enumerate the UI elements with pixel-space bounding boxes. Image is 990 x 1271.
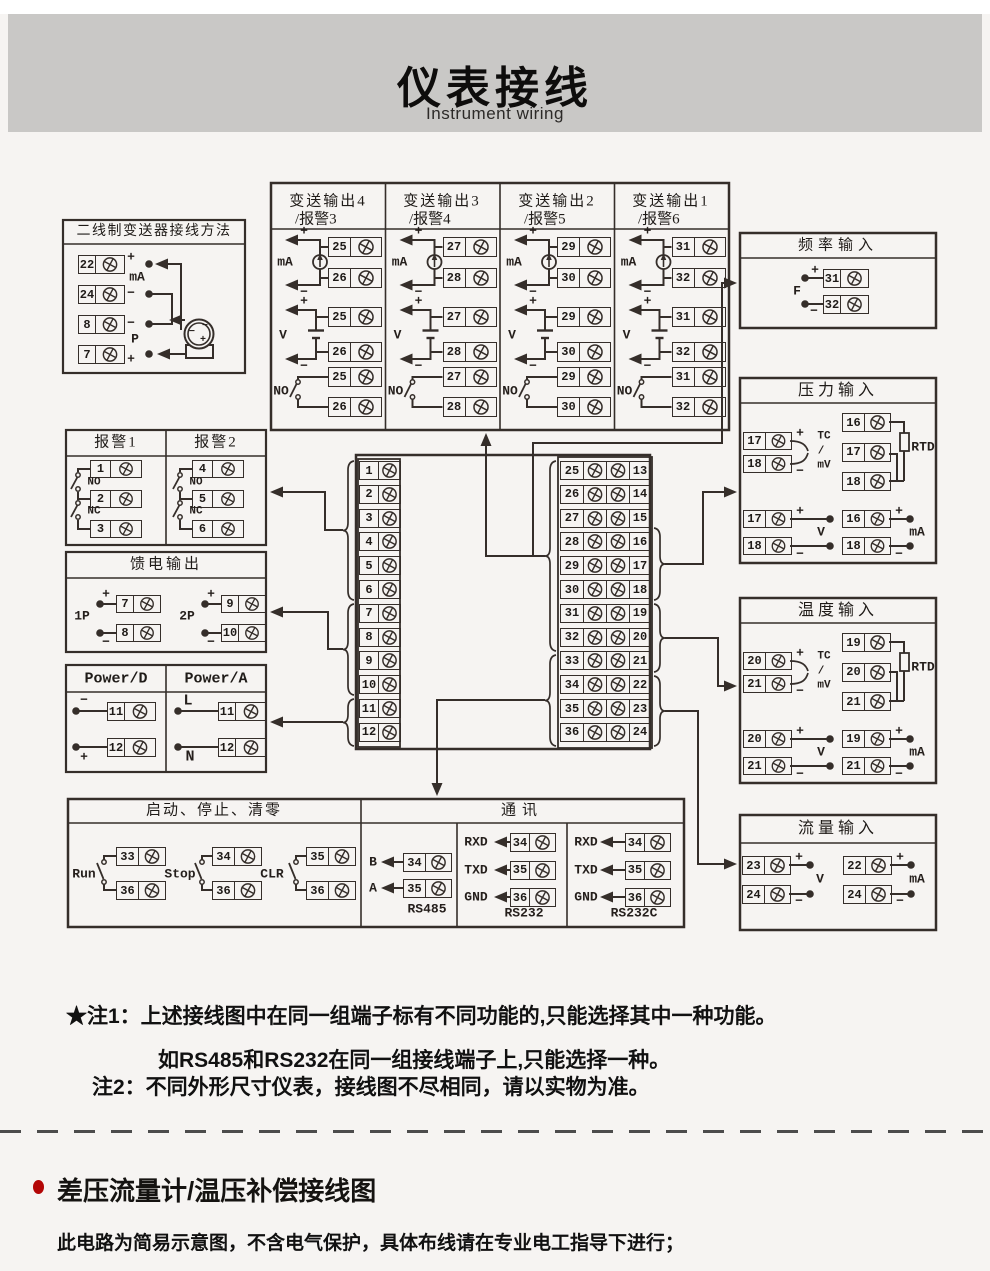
label-plus: +	[896, 851, 904, 864]
label-plus: +	[415, 225, 423, 238]
resistor-temp-icon	[900, 653, 909, 671]
terminal-number: 7	[360, 605, 379, 622]
switch-contact-icon	[639, 395, 643, 399]
box-title-transmit-2: 变送输出2	[518, 195, 596, 210]
terminal-17: 17	[842, 443, 891, 462]
terminal-number: 31	[673, 308, 695, 326]
screw-terminal-icon	[766, 456, 791, 472]
terminal-number: 24	[743, 886, 765, 903]
terminal-number: 33	[117, 848, 139, 865]
label-plus: +	[644, 225, 652, 238]
label-2: CLR	[260, 868, 283, 881]
terminal-group-brace	[545, 461, 556, 651]
screw-terminal-icon	[351, 343, 381, 361]
terminal-number: 26	[329, 398, 351, 416]
terminal-31: 31	[672, 367, 726, 387]
label-l: L	[183, 694, 192, 709]
arrowhead-icon	[270, 717, 283, 728]
terminal-number: 3	[91, 521, 111, 537]
label-tc: TC	[817, 432, 830, 443]
screw-terminal-icon	[841, 296, 868, 313]
screw-terminal-icon	[580, 343, 610, 361]
terminal-row-33: 3321	[560, 651, 651, 670]
arrowhead-icon	[381, 857, 394, 868]
screw-terminal-icon	[695, 398, 725, 416]
terminal-row-30: 3018	[560, 580, 651, 599]
terminal-number: 28	[561, 533, 584, 550]
screw-terminal-icon	[379, 605, 400, 622]
terminal-26: 26	[328, 397, 382, 417]
terminal-number: 5	[360, 557, 379, 574]
wire-end-dot	[801, 274, 809, 282]
terminal-row-28: 2816	[560, 532, 651, 551]
label-plus: +	[811, 264, 819, 277]
terminal-number: 6	[360, 581, 379, 598]
terminal-number: 27	[444, 238, 466, 256]
screw-terminal-icon	[865, 693, 890, 710]
arrowhead-icon	[285, 354, 298, 365]
screw-terminal-icon	[766, 676, 791, 692]
terminal-29: 29	[557, 307, 611, 327]
screw-terminal-icon	[766, 511, 791, 527]
terminal-number: 35	[561, 700, 584, 717]
switch-contact-icon	[294, 880, 298, 884]
label-v: V	[816, 873, 824, 886]
screw-terminal-icon	[645, 834, 670, 851]
screw-terminal-icon	[379, 581, 400, 598]
terminal-number: 15	[630, 510, 650, 527]
screw-terminal-icon	[645, 889, 670, 906]
terminal-number: 31	[673, 368, 695, 386]
screw-terminal-icon	[584, 629, 607, 646]
screw-terminal-icon	[134, 596, 160, 612]
terminal-number: 10	[360, 676, 379, 693]
label-minus: −	[102, 636, 110, 649]
label-minus: −	[529, 360, 537, 373]
terminal-number: 35	[307, 848, 329, 865]
arrowhead-icon	[270, 607, 283, 618]
switch-contact-icon	[410, 380, 414, 384]
screw-terminal-icon	[607, 462, 630, 479]
wire-end-dot	[906, 542, 914, 550]
screw-terminal-icon	[351, 398, 381, 416]
terminal-number: 28	[444, 269, 466, 287]
screw-terminal-icon	[379, 462, 400, 479]
terminal-number: 17	[630, 557, 650, 574]
terminal-number: 29	[558, 368, 580, 386]
terminal-31: 31	[823, 269, 869, 288]
terminal-12: 12	[359, 723, 401, 742]
screw-terminal-icon	[695, 368, 725, 386]
label-plus: +	[127, 353, 135, 366]
terminal-number: 28	[444, 398, 466, 416]
wire-end-dot	[906, 735, 914, 743]
label-plus: +	[127, 251, 135, 264]
label-slash: /	[818, 667, 825, 678]
terminal-3: 3	[90, 520, 142, 538]
screw-terminal-icon	[125, 739, 155, 756]
label-rxd: RXD	[574, 836, 597, 849]
terminal-row-35: 3523	[560, 699, 651, 718]
terminal-9: 9	[359, 651, 401, 670]
label-n: N	[185, 750, 194, 765]
terminal-row-32: 3220	[560, 628, 651, 647]
arrowhead-icon	[724, 681, 737, 692]
terminal-26: 26	[328, 342, 382, 362]
wire-end-dot	[826, 542, 834, 550]
terminal-12: 12	[218, 738, 267, 757]
label-ma: mA	[909, 526, 925, 539]
label-plus: +	[300, 225, 308, 238]
screw-terminal-icon	[695, 238, 725, 256]
label-txd: TXD	[574, 864, 597, 877]
terminal-number: 20	[843, 664, 865, 681]
wire-end-dot	[806, 861, 814, 869]
terminal-34: 34	[212, 847, 262, 866]
screw-terminal-icon	[584, 557, 607, 574]
terminal-18: 18	[743, 455, 792, 473]
label-minus: −	[127, 317, 135, 330]
label-minus: −	[796, 465, 804, 478]
screw-terminal-icon	[607, 581, 630, 598]
terminal-row-27: 2715	[560, 509, 651, 528]
terminal-number: 14	[630, 486, 650, 503]
terminal-number: 29	[558, 238, 580, 256]
terminal-number: 21	[843, 758, 865, 774]
terminal-number: 13	[630, 462, 650, 479]
label-no: NO	[273, 385, 289, 398]
label-p2: 2P	[179, 610, 195, 623]
terminal-number: 18	[744, 538, 766, 554]
terminal-10: 10	[359, 675, 401, 694]
wire-end-dot	[145, 320, 153, 328]
terminal-number: 20	[630, 629, 650, 646]
wire-end-dot	[145, 290, 153, 298]
label-minus: −	[810, 305, 818, 318]
label-plus: +	[796, 505, 804, 518]
terminal-36: 36	[510, 888, 556, 907]
terminal-number: 31	[561, 605, 584, 622]
terminal-32: 32	[672, 397, 726, 417]
arrowhead-icon	[285, 305, 298, 316]
screw-terminal-icon	[379, 629, 400, 646]
label-plus: +	[644, 295, 652, 308]
terminal-36: 36	[212, 881, 262, 900]
terminal-number: 19	[843, 634, 865, 651]
terminal-number: 27	[444, 308, 466, 326]
screw-terminal-icon	[766, 731, 791, 747]
box-title-alarm-2: 报警2	[194, 436, 238, 451]
terminal-number: 18	[843, 473, 865, 490]
terminal-20: 20	[743, 652, 792, 670]
label-minus: −	[207, 636, 215, 649]
label-1: RS232	[504, 907, 543, 920]
arrowhead-icon	[157, 349, 170, 360]
terminal-number: 3	[360, 510, 379, 527]
terminal-6: 6	[192, 520, 244, 538]
terminal-number: 32	[561, 629, 584, 646]
label-no: NO	[502, 385, 518, 398]
label-nc: NC	[87, 507, 100, 518]
screw-terminal-icon	[379, 700, 400, 717]
label-plus: +	[796, 647, 804, 660]
terminal-number: 34	[511, 834, 530, 851]
terminal-number: 17	[744, 433, 766, 449]
terminal-number: 16	[843, 511, 865, 527]
terminal-17: 17	[743, 432, 792, 450]
label-no: NO	[87, 478, 100, 489]
terminal-number: 24	[79, 286, 96, 303]
arrowhead-icon	[600, 865, 613, 876]
label-minus: −	[189, 328, 195, 338]
screw-terminal-icon	[236, 703, 266, 720]
label-plus: +	[529, 225, 537, 238]
wire-end-dot	[801, 300, 809, 308]
screw-terminal-icon	[584, 462, 607, 479]
terminal-number: 12	[108, 739, 125, 756]
terminal-number: 34	[213, 848, 235, 865]
arrowhead-icon	[285, 235, 298, 246]
terminal-11: 11	[359, 699, 401, 718]
terminal-row-34: 3422	[560, 675, 651, 694]
screw-terminal-icon	[466, 343, 496, 361]
label-gnd: GND	[464, 891, 487, 904]
terminal-19: 19	[842, 633, 891, 652]
terminal-number: 7	[117, 596, 134, 612]
label-rxd: RXD	[464, 836, 487, 849]
section-body: 此电路为简易示意图，不含电气保护，具体布线请在专业电工指导下进行；	[57, 1228, 684, 1255]
terminal-number: 18	[843, 538, 865, 554]
switch-contact-icon	[296, 380, 300, 384]
screw-terminal-icon	[580, 398, 610, 416]
arrowhead-icon	[400, 354, 413, 365]
switch-contact-icon	[178, 487, 182, 491]
terminal-number: 36	[511, 889, 530, 906]
terminal-20: 20	[743, 730, 792, 748]
terminal-31: 31	[672, 307, 726, 327]
label-p: P	[131, 333, 139, 346]
arrowhead-icon	[629, 354, 642, 365]
label-minus: −	[644, 360, 652, 373]
switch-contact-icon	[76, 501, 80, 505]
screw-terminal-icon	[580, 308, 610, 326]
terminal-36: 36	[306, 881, 356, 900]
terminal-number: 21	[744, 676, 766, 692]
terminal-number: 33	[561, 652, 584, 669]
screw-terminal-icon	[607, 557, 630, 574]
terminal-number: 21	[744, 758, 766, 774]
label-plus: +	[300, 295, 308, 308]
switch-contact-icon	[410, 395, 414, 399]
terminal-row-31: 3119	[560, 604, 651, 623]
terminal-number: 7	[79, 346, 96, 363]
screw-terminal-icon	[351, 238, 381, 256]
label-no: NO	[388, 385, 404, 398]
terminal-21: 21	[743, 757, 792, 775]
screw-terminal-icon	[865, 758, 890, 774]
screw-terminal-icon	[865, 444, 890, 461]
screw-terminal-icon	[766, 433, 791, 449]
label-plus: +	[895, 505, 903, 518]
terminal-26: 26	[328, 268, 382, 288]
screw-terminal-icon	[865, 634, 890, 651]
wire-end-dot	[145, 350, 153, 358]
terminal-31: 31	[672, 237, 726, 257]
screw-terminal-icon	[607, 676, 630, 693]
label-minus: −	[896, 895, 904, 908]
terminal-row-36: 3624	[560, 723, 651, 742]
terminal-20: 20	[842, 663, 891, 682]
terminal-7: 7	[116, 595, 161, 613]
switch-contact-icon	[178, 515, 182, 519]
terminal-21: 21	[842, 692, 891, 711]
label-v: V	[279, 329, 287, 342]
terminal-24: 24	[78, 285, 125, 304]
screw-terminal-icon	[584, 652, 607, 669]
arrowhead-icon	[400, 235, 413, 246]
screw-terminal-icon	[607, 652, 630, 669]
screw-terminal-icon	[765, 857, 790, 874]
section-heading: 差压流量计/温压补偿接线图	[57, 1171, 376, 1208]
screw-terminal-icon	[695, 343, 725, 361]
screw-terminal-icon	[695, 308, 725, 326]
screw-terminal-icon	[96, 346, 124, 363]
terminal-33: 33	[116, 847, 166, 866]
label-ma: mA	[277, 256, 293, 269]
terminal-number: 2	[360, 486, 379, 503]
screw-terminal-icon	[866, 886, 891, 903]
wire-end-dot	[174, 743, 182, 751]
terminal-18: 18	[743, 537, 792, 555]
screw-terminal-icon	[841, 270, 868, 287]
terminal-24: 24	[742, 885, 791, 904]
arrowhead-icon	[481, 433, 492, 446]
terminal-23: 23	[742, 856, 791, 875]
wire-end-dot	[174, 707, 182, 715]
screw-terminal-icon	[584, 605, 607, 622]
label-minus: −	[202, 322, 208, 332]
label-v: V	[508, 329, 516, 342]
terminal-number: 6	[193, 521, 213, 537]
screw-terminal-icon	[134, 625, 160, 641]
terminal-5: 5	[359, 556, 401, 575]
terminal-number: 12	[360, 724, 379, 741]
label-a: A	[369, 882, 377, 895]
terminal-4: 4	[359, 532, 401, 551]
screw-terminal-icon	[580, 269, 610, 287]
terminal-number: 24	[630, 724, 650, 741]
terminal-32: 32	[672, 342, 726, 362]
terminal-1: 1	[90, 460, 142, 478]
terminal-group-brace	[654, 604, 665, 672]
switch-contact-icon	[200, 880, 204, 884]
terminal-number: 25	[329, 368, 351, 386]
terminal-number: 31	[824, 270, 841, 287]
terminal-8: 8	[116, 624, 161, 642]
terminal-number: 20	[744, 653, 766, 669]
terminal-34: 34	[510, 833, 556, 852]
terminal-32: 32	[672, 268, 726, 288]
arrowhead-icon	[514, 305, 527, 316]
terminal-35: 35	[403, 879, 452, 898]
terminal-number: 25	[329, 308, 351, 326]
screw-terminal-icon	[766, 758, 791, 774]
screw-terminal-icon	[466, 368, 496, 386]
switch-contact-icon	[76, 473, 80, 477]
screw-terminal-icon	[111, 521, 141, 537]
terminal-number: 29	[558, 308, 580, 326]
dashed-divider	[0, 1130, 990, 1133]
arrowhead-icon	[494, 837, 507, 848]
terminal-number: 9	[222, 596, 239, 612]
label-gnd: GND	[574, 891, 597, 904]
terminal-12: 12	[107, 738, 156, 757]
screw-terminal-icon	[426, 880, 451, 897]
screw-terminal-icon	[865, 414, 890, 431]
box-title-frequency-input: 频率输入	[798, 239, 878, 254]
terminal-number: 10	[222, 625, 239, 641]
terminal-number: 36	[213, 882, 235, 899]
label-minus: −	[127, 287, 135, 300]
terminal-number: 26	[329, 269, 351, 287]
screw-terminal-icon	[580, 368, 610, 386]
screw-terminal-icon	[379, 724, 400, 741]
screw-terminal-icon	[239, 596, 265, 612]
label-0: Run	[72, 868, 95, 881]
terminal-number: 19	[843, 731, 865, 747]
terminal-number: 35	[511, 862, 530, 879]
label-nc: NC	[189, 507, 202, 518]
terminal-number: 9	[360, 652, 379, 669]
note-1: ★注1：上述接线图中在同一组端子标有不同功能的,只能选择其中一种功能。	[66, 1000, 777, 1030]
screw-terminal-icon	[379, 676, 400, 693]
screw-terminal-icon	[466, 269, 496, 287]
screw-terminal-icon	[580, 238, 610, 256]
screw-terminal-icon	[329, 848, 355, 865]
terminal-28: 28	[443, 342, 497, 362]
terminal-11: 11	[218, 702, 267, 721]
screw-terminal-icon	[139, 882, 165, 899]
terminal-30: 30	[557, 268, 611, 288]
terminal-number: 21	[630, 652, 650, 669]
screw-terminal-icon	[865, 664, 890, 681]
terminal-29: 29	[557, 367, 611, 387]
screw-terminal-icon	[607, 605, 630, 622]
box-title-flow-input: 流量输入	[798, 821, 878, 837]
terminal-number: 25	[329, 238, 351, 256]
terminal-number: 24	[844, 886, 866, 903]
screw-terminal-icon	[213, 521, 243, 537]
screw-terminal-icon	[379, 510, 400, 527]
terminal-number: 20	[744, 731, 766, 747]
wire-end-dot	[906, 762, 914, 770]
terminal-18: 18	[842, 472, 891, 491]
label-minus: −	[796, 685, 804, 698]
switch-contact-icon	[102, 880, 106, 884]
terminal-36: 36	[625, 888, 671, 907]
terminal-2: 2	[359, 485, 401, 504]
screw-terminal-icon	[607, 700, 630, 717]
terminal-number: 23	[630, 700, 650, 717]
terminal-number: 8	[79, 316, 96, 333]
terminal-number: 4	[193, 461, 213, 477]
terminal-34: 34	[403, 853, 452, 872]
wire-end-dot	[826, 735, 834, 743]
arrowhead-icon	[629, 305, 642, 316]
arrowhead-icon	[494, 892, 507, 903]
box-title-power-d: Power/D	[84, 672, 147, 687]
box-title-communication: 通讯	[501, 804, 543, 819]
